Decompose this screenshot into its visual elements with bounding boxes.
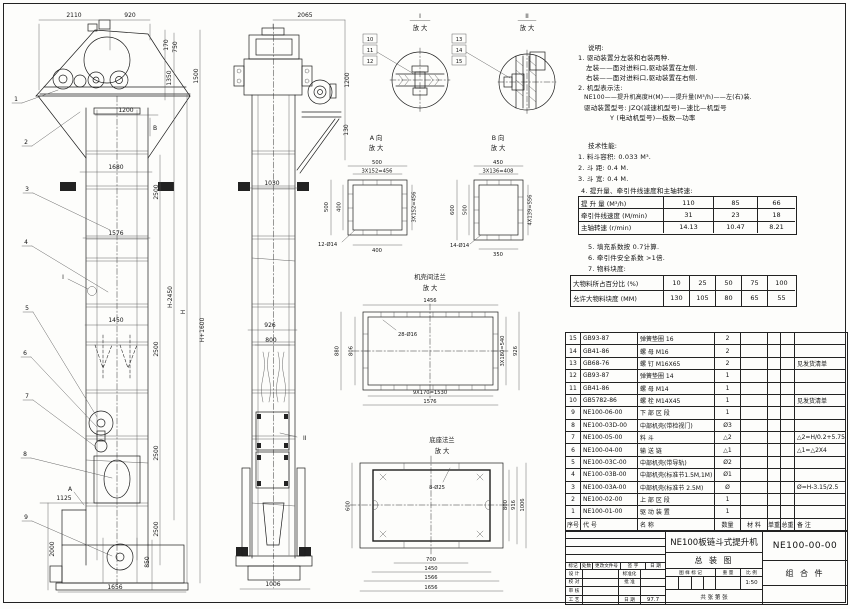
bom-cell — [795, 383, 845, 395]
dim-label: 1500 — [193, 68, 200, 83]
bom-cell — [768, 358, 781, 370]
bom-cell — [781, 345, 795, 357]
detail-marker-i: I — [62, 274, 64, 281]
capacity-row-label: 牵引件线速度 (M/min) — [579, 209, 664, 221]
bom-cell — [768, 469, 781, 481]
bom-cell: 2 — [715, 345, 741, 357]
bom-cell: NE100-03D-00 — [581, 420, 638, 432]
bom-cell: 弹簧垫圈 14 — [638, 370, 715, 382]
bom-cell — [741, 383, 768, 395]
bom-cell — [741, 333, 768, 345]
view-arrow-a: A — [68, 486, 73, 493]
bom-cell — [741, 358, 768, 370]
note-line: Y (电动机型号)—极数—功率 — [610, 112, 696, 122]
casing-flange-detail: 机壳间法兰 放 大 1456 28-Ø16 880 806 3X180=540 … — [335, 272, 520, 405]
dim-label: 9X170=1530 — [413, 390, 447, 396]
bom-cell: 4 — [566, 469, 581, 481]
dim-label: 4X139=556 — [528, 194, 534, 225]
dim-label: 920 — [124, 12, 136, 19]
drawing-title-line2: 总 装 图 — [666, 553, 763, 569]
bom-cell: 中部机壳(带导轨) — [638, 457, 715, 469]
dim-label: 1125 — [56, 495, 71, 502]
bom-cell: 14 — [566, 345, 581, 357]
balloon-4: 4 — [24, 239, 28, 246]
base-flange-detail: 底座法兰 放 大 8-Ø25 600 800 916 1006 700 1450… — [346, 435, 527, 591]
balloon-9: 9 — [24, 514, 28, 521]
dim-label: 750 — [172, 41, 179, 53]
dim-label: 850 — [144, 556, 151, 568]
bom-cell: 2 — [715, 333, 741, 345]
bom-cell — [781, 469, 795, 481]
bom-cell: 9 — [566, 407, 581, 419]
dim-label: 500 — [324, 202, 330, 212]
stamp-box — [692, 577, 704, 590]
rev-header-count: 处数 — [581, 563, 593, 570]
balloon-2: 2 — [24, 139, 28, 146]
balloon-6: 6 — [23, 350, 27, 357]
dim-label: 3X152=456 — [361, 169, 392, 175]
bom-cell — [741, 469, 768, 481]
bom-cell: 弹簧垫圈 16 — [638, 333, 715, 345]
stamp-box — [666, 577, 679, 590]
bom-cell — [781, 444, 795, 456]
bom-cell: Ø3 — [715, 420, 741, 432]
view-b-subtitle: 放 大 — [491, 143, 506, 152]
performance-heading: 技术性能: — [588, 140, 617, 150]
bom-cell: Ø=H-3.15/2.5 — [795, 482, 845, 494]
scale-label: 比 例 — [741, 569, 763, 577]
casing-flange-subtitle: 放 大 — [423, 283, 438, 292]
bom-cell: Ø1 — [715, 469, 741, 481]
lump-cell: 50 — [716, 276, 742, 291]
dim-label: 1576 — [108, 230, 123, 237]
bom-cell: NE100-03B-00 — [581, 469, 638, 481]
lump-cell: 25 — [690, 276, 716, 291]
bom-cell — [741, 457, 768, 469]
bom-cell — [741, 506, 768, 518]
bom-cell — [741, 345, 768, 357]
detail-ii-title: II — [525, 13, 529, 20]
dim-label: 880 — [335, 346, 341, 356]
bom-cell — [795, 345, 845, 357]
bom-cell — [781, 420, 795, 432]
perf-item: 1. 料斗容积: 0.033 M³. — [578, 151, 651, 161]
dim-label: 806 — [349, 346, 355, 356]
dim-label: H+1600 — [199, 317, 206, 342]
drawing-title-line1: NE100板链斗式提升机 — [666, 531, 763, 553]
dim-label: 2500 — [153, 445, 160, 460]
bom-cell — [768, 407, 781, 419]
bom-cell — [768, 506, 781, 518]
rev-header-mark: 标记 — [566, 563, 581, 570]
capacity-cell: 10.47 — [714, 222, 758, 234]
bom-cell — [795, 370, 845, 382]
lump-cell: 55 — [768, 291, 795, 306]
bom-cell — [768, 494, 781, 506]
capacity-cell: 14.13 — [664, 222, 714, 234]
dim-label: 1576 — [423, 399, 436, 405]
bom-cell: 2 — [715, 358, 741, 370]
bom-cell — [781, 333, 795, 345]
dim-label: 600 — [346, 501, 352, 511]
detail-view-i: I 放 大 10 11 12 — [363, 13, 450, 112]
perf-item: 4. 提升量、牵引件线速度和主轴转速: — [581, 185, 693, 195]
bom-cell: GB41-86 — [581, 345, 638, 357]
bom-cell: 7 — [566, 432, 581, 444]
drawing-number: NE100-00-00 — [763, 531, 847, 561]
lump-size-table: 大物料所占百分比 (%) 10 25 50 75 100 允许大物料块度 (MM… — [570, 275, 797, 307]
note-line: 2. 机型表示法: — [578, 82, 623, 92]
notes-heading: 说明: — [588, 42, 604, 52]
stamp-mark-label: 图 样 标 记 — [666, 569, 716, 577]
dim-label: 500 — [372, 160, 382, 166]
bom-cell: 中部机壳(带检视门) — [638, 420, 715, 432]
view-a-flange: A 向 放 大 500 3X152=456 500 400 3X152=456 … — [318, 133, 418, 254]
stamp-box — [704, 577, 716, 590]
dim-label: 1656 — [107, 584, 122, 591]
bom-cell — [741, 482, 768, 494]
bom-cell: NE100-03A-00 — [581, 482, 638, 494]
note-line: 驱动装置型号: JZQ(减速机型号)—速比—机型号 — [584, 102, 727, 112]
bom-cell — [768, 395, 781, 407]
base-flange-subtitle: 放 大 — [435, 446, 450, 455]
bom-cell — [768, 432, 781, 444]
bom-cell — [768, 457, 781, 469]
title-block: 标记 处数 更改文件号 签 字 日 期 设 计 标准化 校 对 批 准 审 核 … — [565, 530, 848, 605]
bom-cell: 15 — [566, 333, 581, 345]
role-audit-sign[interactable] — [583, 587, 619, 596]
capacity-cell: 18 — [758, 209, 795, 221]
lump-cell: 10 — [664, 276, 690, 291]
part-type: 组 合 件 — [763, 561, 847, 586]
lump-cell: 65 — [742, 291, 768, 306]
balloon-1: 1 — [14, 96, 18, 103]
revision-row — [566, 531, 666, 539]
bom-cell: 1 — [715, 383, 741, 395]
bom-table: 15GB93-87弹簧垫圈 16214GB41-86螺 母 M16213GB68… — [565, 332, 848, 532]
balloon-15: 15 — [456, 59, 463, 65]
perf-item: 7. 物料块度: — [588, 263, 626, 273]
side-view: 2065 1200 130 1030 926 800 II 1006 — [234, 12, 351, 589]
bom-cell — [781, 457, 795, 469]
note-line: 右装——面对进料口,驱动装置在右侧. — [586, 72, 698, 82]
bom-cell — [768, 482, 781, 494]
date-value: 97.7 — [641, 596, 666, 605]
bom-cell: 11 — [566, 383, 581, 395]
role-audit: 审 核 — [566, 587, 583, 596]
bom-cell: △2 — [715, 432, 741, 444]
note-line: 1. 驱动装置分左装和右装两种. — [578, 52, 670, 62]
hole-callout: 12-Ø14 — [318, 241, 338, 248]
role-approve-sign[interactable] — [641, 579, 666, 588]
dim-label: 1200 — [344, 72, 351, 87]
bom-cell: 螺 栓 M14X45 — [638, 395, 715, 407]
role-process: 工 艺 — [566, 596, 583, 605]
dim-label: 170 — [163, 39, 170, 51]
revision-row — [566, 539, 666, 547]
bom-cell — [795, 333, 845, 345]
view-a-subtitle: 放 大 — [369, 143, 384, 152]
view-b-title: B 向 — [492, 133, 505, 142]
revision-row — [566, 547, 666, 555]
dim-label: 916 — [511, 500, 517, 510]
dim-label: 600 — [450, 205, 456, 215]
bom-cell — [795, 506, 845, 518]
bom-cell: NE100-06-00 — [581, 407, 638, 419]
bom-cell — [781, 407, 795, 419]
capacity-cell: 110 — [664, 197, 714, 209]
bom-cell — [741, 370, 768, 382]
dim-label: 450 — [493, 160, 503, 166]
bom-cell: 1 — [715, 506, 741, 518]
dim-label: H-2450 — [167, 286, 174, 308]
dim-label: 500 — [463, 205, 469, 215]
bom-cell — [741, 395, 768, 407]
casing-flange-title: 机壳间法兰 — [414, 272, 445, 281]
dim-label: 1030 — [264, 180, 279, 187]
dim-label: 2110 — [66, 12, 81, 19]
bom-cell — [781, 482, 795, 494]
bom-cell — [781, 395, 795, 407]
bom-cell: 见发货清单 — [795, 358, 845, 370]
lump-cell: 80 — [716, 291, 742, 306]
lump-cell: 105 — [690, 291, 716, 306]
dim-label: 3X180=540 — [500, 335, 506, 366]
bom-cell — [741, 444, 768, 456]
date-label: 日 期 — [619, 596, 641, 605]
bom-cell: NE100-01-00 — [581, 506, 638, 518]
bom-cell: 螺 钉 M16X65 — [638, 358, 715, 370]
dim-label: 1006 — [520, 498, 526, 511]
elevator-drawing-canvas: 2110 920 170 750 1350 1500 1200 1680 250… — [0, 0, 565, 609]
bom-cell — [741, 432, 768, 444]
dim-label: 1566 — [424, 575, 437, 581]
bom-cell: 1 — [715, 395, 741, 407]
bom-cell: △1=△2X4 — [795, 444, 845, 456]
bom-cell: 1 — [715, 494, 741, 506]
perf-item: 5. 填充系数按 0.7计算. — [588, 241, 659, 251]
rev-header-docno: 更改文件号 — [593, 563, 621, 570]
perf-item: 6. 牵引件安全系数 >1倍. — [588, 252, 665, 262]
scale-value: 1:50 — [741, 577, 763, 590]
bom-cell — [768, 383, 781, 395]
capacity-cell: 23 — [714, 209, 758, 221]
bom-cell: 驱 动 装 置 — [638, 506, 715, 518]
dim-label: 926 — [513, 346, 519, 356]
dim-label: 2000 — [49, 541, 56, 556]
dim-label: 1680 — [108, 164, 123, 171]
bom-cell: Ø — [715, 482, 741, 494]
revision-row — [566, 555, 666, 563]
capacity-row-label: 提 升 量 (M³/h) — [579, 197, 664, 209]
bom-cell: △2=H/0.2+5.75 — [795, 432, 845, 444]
bom-cell: GB5782-86 — [581, 395, 638, 407]
bom-cell — [795, 407, 845, 419]
dim-label: 926 — [264, 322, 276, 329]
sheet-count-row: 共 张 第 张 — [666, 590, 763, 604]
dim-label: 400 — [372, 248, 382, 254]
bom-cell: 13 — [566, 358, 581, 370]
lump-cell: 100 — [768, 276, 795, 291]
capacity-table: 提 升 量 (M³/h) 110 85 66 牵引件线速度 (M/min) 31… — [578, 196, 797, 235]
lump-cell: 130 — [664, 291, 690, 306]
bom-cell: GB68-76 — [581, 358, 638, 370]
view-b-flange: B 向 放 大 450 3X136=408 600 500 4X139=556 … — [450, 133, 534, 258]
bom-cell — [795, 494, 845, 506]
bom-cell: 1 — [715, 407, 741, 419]
capacity-cell: 31 — [664, 209, 714, 221]
dim-label: 350 — [493, 252, 503, 258]
bom-cell: GB41-86 — [581, 383, 638, 395]
bom-cell: 见发货清单 — [795, 395, 845, 407]
bom-cell — [768, 370, 781, 382]
bom-cell: GB93-87 — [581, 370, 638, 382]
role-blank — [619, 587, 641, 596]
role-blank-sign[interactable] — [641, 587, 666, 596]
bom-cell: GB93-87 — [581, 333, 638, 345]
bom-cell — [768, 420, 781, 432]
role-check-sign[interactable] — [583, 579, 619, 588]
weight-label: 重 量 — [716, 569, 741, 577]
bom-cell: 上 部 区 段 — [638, 494, 715, 506]
role-process-sign[interactable] — [583, 596, 619, 605]
detail-ii-subtitle: 放 大 — [520, 23, 535, 32]
bom-cell — [781, 370, 795, 382]
dim-label: 2500 — [153, 341, 160, 356]
bom-cell: NE100-02-00 — [581, 494, 638, 506]
dim-label: H — [180, 310, 187, 315]
bom-cell: 3 — [566, 482, 581, 494]
capacity-cell: 66 — [758, 197, 795, 209]
balloon-7: 7 — [25, 393, 29, 400]
dim-label: 1656 — [424, 585, 437, 591]
balloon-3: 3 — [25, 186, 29, 193]
bom-cell: 料 斗 — [638, 432, 715, 444]
bom-cell — [768, 333, 781, 345]
bom-cell: 6 — [566, 444, 581, 456]
weight-value — [716, 577, 741, 590]
bom-cell: 螺 母 M16 — [638, 345, 715, 357]
note-line: NE100——提升机高度H(M)——提升量(M³/h)——左(右)装. — [584, 92, 752, 101]
base-flange-title: 底座法兰 — [429, 435, 454, 444]
view-a-title: A 向 — [370, 133, 383, 142]
bom-cell: △1 — [715, 444, 741, 456]
role-design: 设 计 — [566, 570, 583, 579]
detail-marker-ii: II — [303, 435, 307, 442]
bom-cell — [781, 494, 795, 506]
dim-label: 2065 — [297, 12, 312, 19]
perf-item: 2. 斗 距: 0.4 M. — [578, 162, 628, 172]
bom-cell — [768, 345, 781, 357]
rev-header-date: 日 期 — [646, 563, 666, 570]
balloon-10: 10 — [367, 37, 374, 43]
dim-label: 2500 — [153, 184, 160, 199]
hole-callout: 28-Ø16 — [398, 331, 417, 338]
note-line: 左装——面对进料口,驱动装置在左侧. — [586, 62, 698, 72]
lump-row-label: 允许大物料块度 (MM) — [571, 291, 664, 306]
dim-label: 3X136=408 — [482, 169, 513, 175]
dim-label: 130 — [343, 124, 350, 136]
role-check: 校 对 — [566, 579, 583, 588]
bom-cell: 2 — [566, 494, 581, 506]
dim-label: 800 — [265, 337, 277, 344]
bom-cell — [781, 506, 795, 518]
role-approve: 批 准 — [619, 579, 641, 588]
detail-i-title: I — [419, 13, 421, 20]
bom-cell — [781, 383, 795, 395]
dim-label: 1450 — [424, 566, 437, 572]
bom-cell: NE100-05-00 — [581, 432, 638, 444]
dim-label: 700 — [426, 557, 436, 563]
bom-cell — [741, 407, 768, 419]
role-standard-sign[interactable] — [641, 570, 666, 579]
drawing-sheet: 2110 920 170 750 1350 1500 1200 1680 250… — [0, 0, 850, 609]
title-block-blank — [763, 586, 847, 604]
stamp-box — [679, 577, 692, 590]
lump-row-label: 大物料所占百分比 (%) — [571, 276, 664, 291]
rev-header-sign: 签 字 — [621, 563, 646, 570]
dim-label: 1350 — [166, 70, 173, 85]
bom-cell — [781, 432, 795, 444]
bom-cell: NE100-03C-00 — [581, 457, 638, 469]
bom-cell — [741, 420, 768, 432]
detail-i-subtitle: 放 大 — [413, 23, 428, 32]
dim-label: 400 — [337, 202, 343, 212]
hole-callout: 14-Ø14 — [450, 242, 470, 249]
balloon-12: 12 — [367, 59, 374, 65]
bom-cell: 螺 母 M14 — [638, 383, 715, 395]
detail-view-ii: II 放 大 13 14 15 — [452, 13, 556, 114]
dim-label: 800 — [503, 500, 509, 510]
balloon-13: 13 — [456, 37, 463, 43]
hole-callout: 8-Ø25 — [429, 484, 445, 491]
dim-label: 3X152=456 — [412, 191, 418, 222]
balloon-8: 8 — [23, 451, 27, 458]
bom-cell: 10 — [566, 395, 581, 407]
view-arrow-b: B — [153, 125, 157, 132]
balloon-11: 11 — [367, 48, 374, 54]
dim-label: 1006 — [265, 581, 280, 588]
dim-label: 1450 — [108, 317, 123, 324]
bom-cell: 中部机壳(标准节1.5M,1M) — [638, 469, 715, 481]
bom-cell — [741, 494, 768, 506]
front-view: 2110 920 170 750 1350 1500 1200 1680 250… — [12, 12, 206, 592]
bom-cell: 1 — [715, 370, 741, 382]
bom-cell: Ø2 — [715, 457, 741, 469]
bom-cell — [781, 358, 795, 370]
bom-cell — [795, 457, 845, 469]
dim-label: 2500 — [153, 521, 160, 536]
role-design-sign[interactable] — [583, 570, 619, 579]
role-standard: 标准化 — [619, 570, 641, 579]
bom-cell: 12 — [566, 370, 581, 382]
bom-cell — [768, 444, 781, 456]
capacity-cell: 8.21 — [758, 222, 795, 234]
bom-cell: 输 送 链 — [638, 444, 715, 456]
bom-cell — [795, 420, 845, 432]
dim-label: 1456 — [423, 298, 436, 304]
bom-cell: 下 部 区 段 — [638, 407, 715, 419]
bom-cell: 中部机壳(标准节 2.5M) — [638, 482, 715, 494]
perf-item: 3. 斗 宽: 0.4 M. — [578, 173, 628, 183]
bom-cell: 8 — [566, 420, 581, 432]
capacity-row-label: 主轴转速 (r/min) — [579, 222, 664, 234]
bom-cell: NE100-04-00 — [581, 444, 638, 456]
bom-cell — [795, 469, 845, 481]
balloon-14: 14 — [456, 48, 463, 54]
bom-cell: 5 — [566, 457, 581, 469]
bom-cell: 1 — [566, 506, 581, 518]
